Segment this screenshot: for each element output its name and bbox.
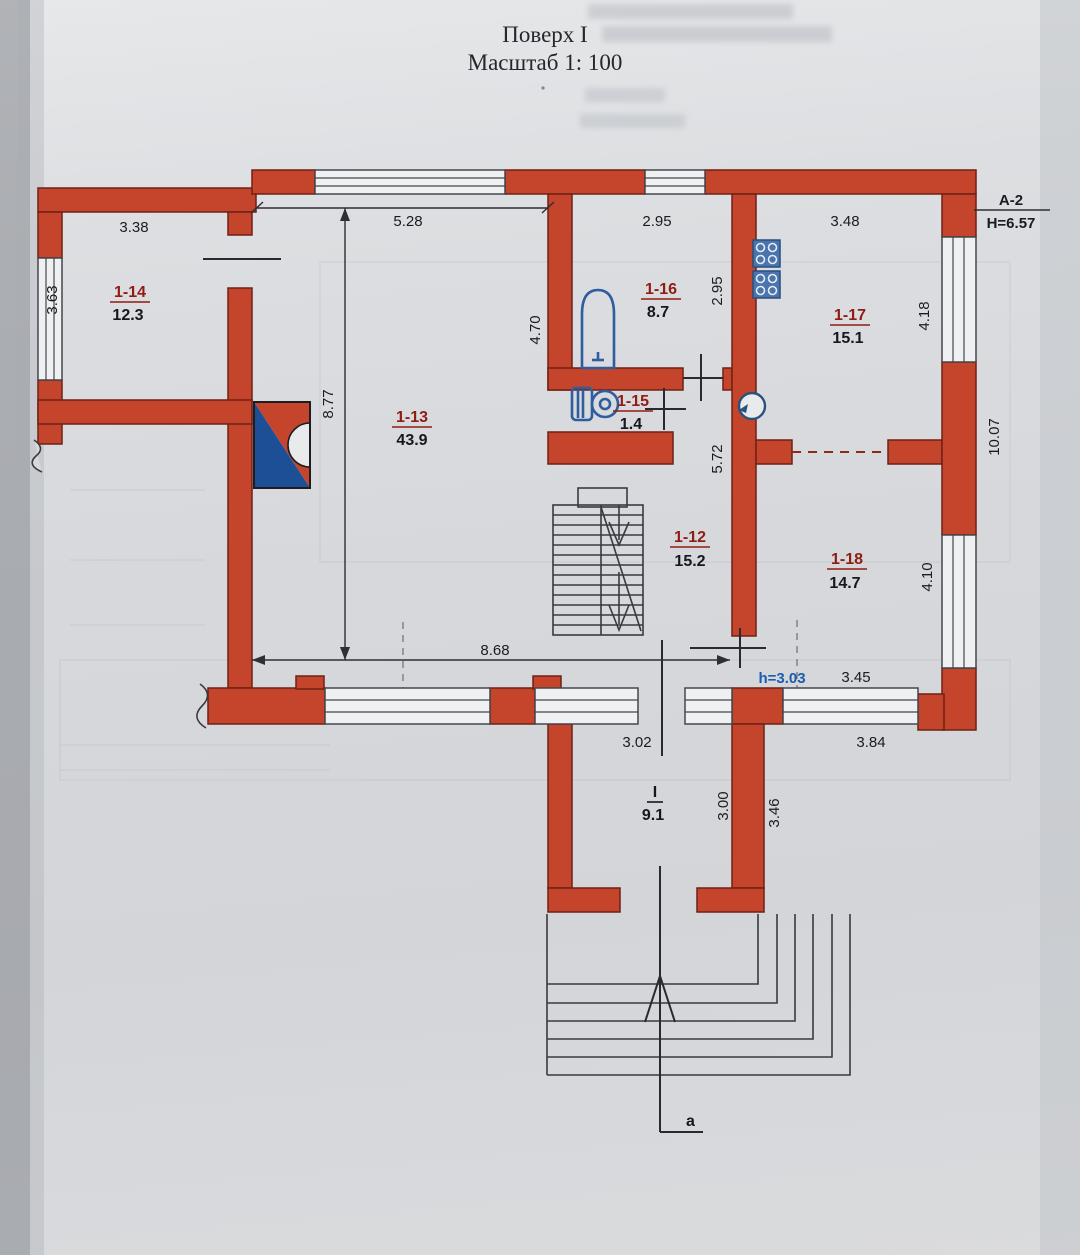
- room-area: 8.7: [647, 304, 669, 321]
- room-number: I: [653, 784, 657, 801]
- entry-porch-steps: [547, 914, 850, 1075]
- dim-room14-depth: 3.63: [44, 285, 61, 314]
- room-label-1-13: 1-13 43.9: [392, 409, 432, 449]
- ceiling-height-label: h=3.03: [758, 670, 805, 687]
- dim-room18-outer: 3.84: [856, 734, 885, 751]
- wall-bottom-room14: [38, 400, 252, 424]
- toilet-icon: [572, 388, 618, 420]
- dim-room17-width: 3.48: [830, 213, 859, 230]
- scale-title: Масштаб 1: 100: [468, 50, 623, 75]
- dim-room14-width: 3.38: [119, 219, 148, 236]
- wall-break-left: [197, 684, 208, 728]
- floor-title: Поверх I: [502, 22, 587, 47]
- door-marks: [203, 259, 766, 756]
- wall-right-outer-top: [942, 194, 976, 237]
- entry-arrow-icon: [645, 866, 703, 1132]
- axis-mark-label: A-2: [999, 192, 1023, 209]
- boiler-icon: [739, 393, 765, 419]
- room-label-1-17: 1-17 15.1: [830, 307, 870, 347]
- wall-bottom-right-corner: [918, 694, 944, 730]
- room-area: 1.4: [620, 416, 642, 433]
- dim-right-total: 10.07: [986, 418, 1003, 456]
- dim-room18-depth: 4.10: [919, 562, 936, 591]
- fireplace-icon: [254, 402, 310, 488]
- dim-room17-depth: 4.18: [916, 301, 933, 330]
- wall-bottom-left: [208, 688, 325, 724]
- stove-icon-2: [753, 271, 780, 298]
- wall-vestibule-bottom-right: [697, 888, 764, 912]
- wall-right-outer-corner: [942, 668, 976, 730]
- wall-bottom-mid: [490, 688, 535, 724]
- stair-treads: [553, 515, 643, 625]
- wall-pier-right: [533, 676, 561, 689]
- wall-right-outer-mid: [942, 362, 976, 535]
- wall-bath-bottom-a: [548, 368, 683, 390]
- wall-partition-14-13-upper: [228, 212, 252, 235]
- scanned-floor-plan-page: Поверх I Масштаб 1: 100: [0, 0, 1080, 1255]
- room-area: 15.2: [674, 553, 705, 570]
- room-area: 14.7: [829, 575, 860, 592]
- dim-room16-depth: 2.95: [709, 276, 726, 305]
- wall-kitchen-18-stub-right: [888, 440, 942, 464]
- room-label-1-16: 1-16 8.7: [641, 281, 681, 321]
- wall-vestibule-left: [548, 724, 572, 888]
- wall-top-main-c: [705, 170, 976, 194]
- room-label-1-15: 1-15 1.4: [613, 393, 653, 433]
- stove-icon: [753, 240, 780, 267]
- window-kitchen-right: [942, 237, 976, 362]
- dimension-labels: 3.38 5.28 2.95 3.48 3.63 8.77 4.70 2.95 …: [44, 192, 1035, 828]
- wall-left-room14-upper: [38, 212, 62, 258]
- dim-bottom-span: 8.68: [480, 642, 509, 659]
- room-area: 12.3: [112, 307, 143, 324]
- room-area: 43.9: [396, 432, 427, 449]
- window-room18-right: [942, 535, 976, 668]
- window-vestibule-right: [685, 688, 732, 724]
- room-number: 1-17: [834, 307, 866, 324]
- room-number: 1-16: [645, 281, 677, 298]
- room-number: 1-12: [674, 529, 706, 546]
- window-vestibule-left: [535, 688, 638, 724]
- wall-bath-bottom-b: [723, 368, 732, 390]
- wall-below-wc: [548, 432, 673, 464]
- room-label-I: I 9.1: [642, 784, 664, 824]
- room-area: 9.1: [642, 807, 664, 824]
- dim-room13-depth: 8.77: [320, 389, 337, 418]
- wall-bottom-center-right: [732, 688, 783, 724]
- wall-pier-left: [296, 676, 324, 689]
- room-number: 1-13: [396, 409, 428, 426]
- dim-vestibule-width: 3.02: [622, 734, 651, 751]
- room-label-1-18: 1-18 14.7: [827, 551, 867, 592]
- dim-room13-inner: 4.70: [527, 315, 544, 344]
- window-room16-top: [645, 170, 705, 194]
- wall-top-main-b: [505, 170, 645, 194]
- dim-room16-width: 2.95: [642, 213, 671, 230]
- stray-ink-dot: [541, 86, 544, 89]
- dim-room13-width: 5.28: [393, 213, 422, 230]
- walls: [32, 170, 976, 912]
- wall-vestibule-right: [732, 724, 764, 888]
- bathtub-icon: [582, 290, 614, 368]
- right-edge-shade: [1040, 0, 1080, 1255]
- room-label-1-12: 1-12 15.2: [670, 529, 710, 570]
- room-label-1-14: 1-14 12.3: [110, 284, 150, 324]
- stair-landing: [578, 488, 627, 507]
- axis-height-label: H=6.57: [987, 215, 1036, 232]
- dim-room18-width: 3.45: [841, 669, 870, 686]
- wall-top-room14: [38, 188, 256, 212]
- windows: [38, 170, 976, 724]
- window-room13-bottom: [325, 688, 490, 724]
- wall-kitchen-18-stub-left: [756, 440, 792, 464]
- room-area: 15.1: [832, 330, 863, 347]
- room-number: 1-15: [617, 393, 649, 410]
- room-number: 1-18: [831, 551, 863, 568]
- section-mark-label: a: [686, 1113, 695, 1130]
- dim-vestibule-outer: 3.46: [766, 798, 783, 827]
- floor-plan-drawing: Поверх I Масштаб 1: 100: [0, 0, 1080, 1255]
- dim-hall-depth: 5.72: [709, 444, 726, 473]
- wall-vestibule-bottom-left: [548, 888, 620, 912]
- window-room14-left: [38, 258, 62, 380]
- dim-vestibule-depth: 3.00: [715, 791, 732, 820]
- stair-direction-arrows: [609, 505, 629, 630]
- drawing-title: Поверх I Масштаб 1: 100: [468, 22, 623, 75]
- window-room18-bottom: [783, 688, 918, 724]
- wall-top-main-a: [252, 170, 315, 194]
- wall-room13-room16: [548, 194, 572, 390]
- room-number: 1-14: [114, 284, 146, 301]
- window-room13-top: [315, 170, 505, 194]
- wall-partition-14-13: [228, 288, 252, 688]
